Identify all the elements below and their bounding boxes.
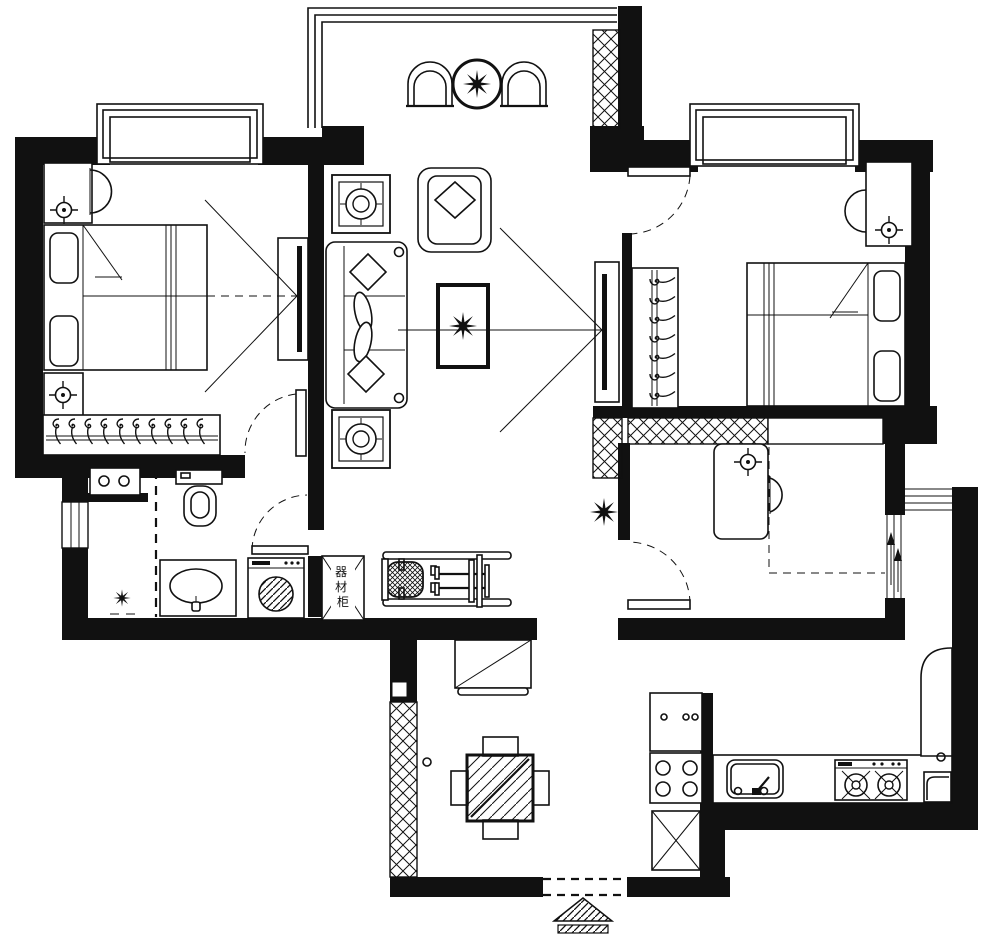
- shoe-cabinet: [455, 640, 531, 695]
- dining-chair: [483, 820, 518, 839]
- door-bedroom1: [245, 390, 306, 456]
- double-bed: [44, 225, 207, 370]
- shaft-hatch-living: [593, 418, 622, 478]
- desk-chair: [770, 478, 782, 512]
- weight-bench: [382, 552, 511, 607]
- bathroom-window: [62, 502, 88, 548]
- washbasin: [160, 560, 236, 616]
- entry-arrow: [554, 898, 612, 933]
- door-study: [628, 542, 690, 609]
- study: [628, 444, 902, 609]
- dining-chair: [483, 737, 518, 756]
- coffee-table: [438, 285, 488, 367]
- dining-chair: [533, 771, 549, 805]
- tv-panel-bedroom1: [205, 200, 308, 392]
- floor-plan-page: 器 材 柜: [0, 0, 1000, 934]
- kitchen: [713, 648, 952, 803]
- plant-icon: [449, 312, 477, 340]
- washing-machine: [248, 558, 304, 618]
- chair-arc: [90, 170, 112, 213]
- chair-arc: [845, 190, 866, 232]
- gas-stove: [835, 760, 907, 800]
- gym-corridor: 器 材 柜: [322, 552, 511, 620]
- dining-chair: [451, 771, 468, 805]
- wardrobe-hangers: [632, 268, 678, 408]
- armchair: [418, 168, 491, 252]
- toilet: [176, 470, 222, 526]
- sofa: [326, 242, 407, 408]
- door-stop: [423, 758, 431, 766]
- desk: [714, 444, 782, 539]
- sliding-door: [887, 513, 902, 598]
- bedroom2: [628, 162, 912, 408]
- bay-window-bedroom2: [690, 104, 859, 166]
- sideboard-column: [650, 693, 702, 870]
- plant: [113, 589, 130, 606]
- balcony-chair-left: [406, 62, 454, 106]
- balcony-chair-right: [500, 62, 548, 106]
- floor-plan-drawing: 器 材 柜: [0, 0, 1000, 934]
- equipment-cabinet: 器 材 柜: [322, 556, 364, 620]
- wall-niche: [392, 682, 407, 697]
- door-bedroom2: [628, 167, 690, 234]
- plant-icon: [463, 70, 491, 98]
- kitchen-sink: [727, 760, 783, 798]
- balcony: [406, 60, 548, 108]
- shaft-hatch-dining: [390, 702, 417, 877]
- foyer-dining: [423, 640, 702, 870]
- tv-panel-living: [398, 228, 619, 432]
- bay-window-bedroom1: [97, 104, 263, 164]
- plant-icon: [590, 498, 618, 526]
- cabinet-two-knobs: [90, 468, 140, 495]
- wardrobe-hangers: [43, 415, 220, 455]
- refrigerator: [921, 648, 952, 756]
- bathroom: [90, 468, 308, 618]
- shaft-hatch-balcony: [593, 30, 620, 128]
- balcony-round-table: [453, 60, 501, 108]
- corner-unit: [924, 772, 951, 802]
- side-table: [332, 175, 390, 233]
- door-bathroom: [252, 495, 308, 554]
- shaft-hatch-bedroom2: [628, 418, 768, 444]
- living-room: [326, 168, 619, 526]
- double-bed: [747, 263, 905, 406]
- ledge-study-top: [768, 418, 883, 444]
- equipment-cabinet-label: 器 材 柜: [335, 565, 351, 609]
- side-table: [332, 410, 390, 468]
- bedroom1: [43, 163, 308, 456]
- kitchen-window: [905, 489, 952, 510]
- dining-table-set: [451, 737, 549, 839]
- entry: [543, 879, 627, 933]
